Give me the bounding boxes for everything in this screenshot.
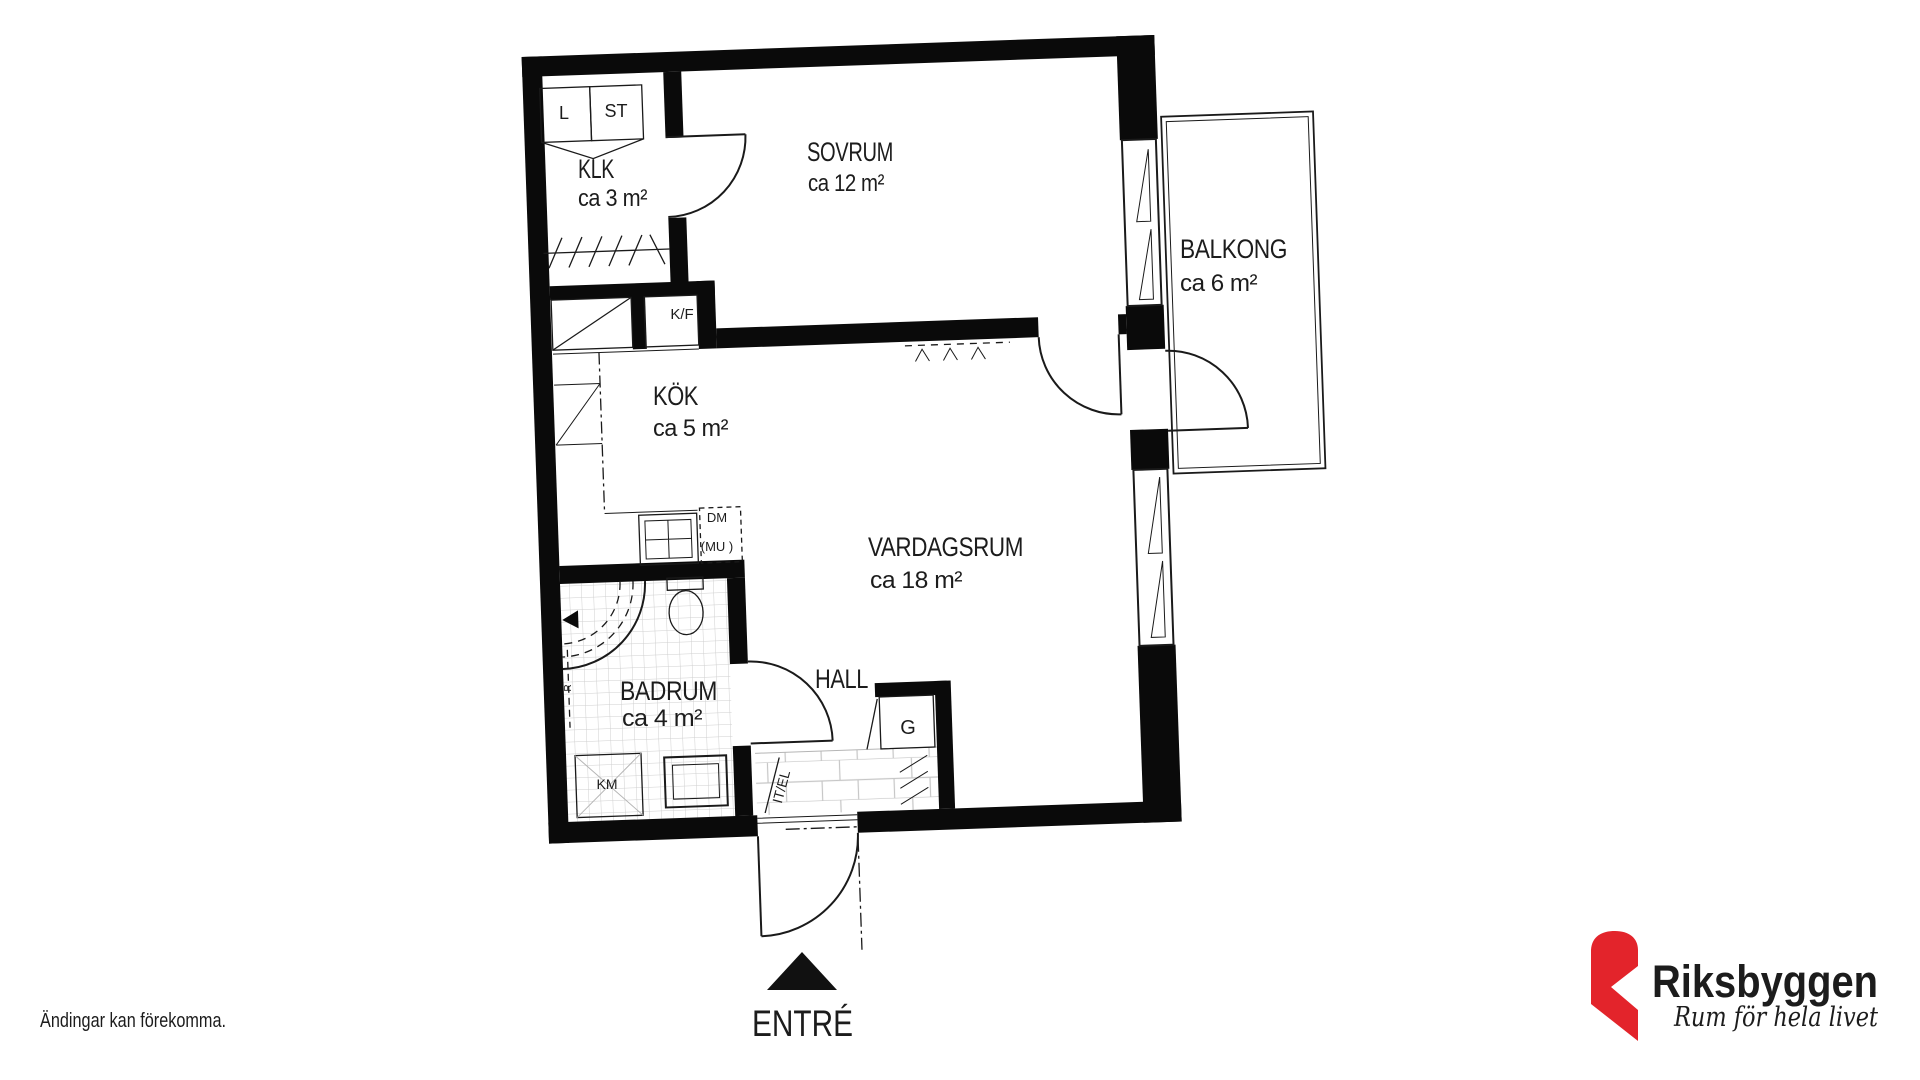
disclaimer-text: Ändingar kan förekomma. — [40, 1010, 226, 1032]
wall-sovrum-bottom-end — [1118, 314, 1127, 334]
label-wardrobe: G — [900, 717, 916, 739]
wall-stub-kf — [697, 280, 717, 349]
wall-right-pillar-2 — [1126, 305, 1166, 350]
label-fridge-freezer: K/F — [670, 306, 693, 323]
room-label-kok: KÖK — [653, 381, 698, 411]
brand-name: Riksbyggen — [1652, 956, 1878, 1007]
room-area-kok: ca 5 m² — [653, 415, 728, 442]
wall-badrum-right-lower — [733, 745, 753, 816]
wall-klk-right-upper — [663, 71, 683, 138]
room-label-badrum: BADRUM — [620, 676, 717, 706]
room-label-hall: HALL — [815, 664, 868, 694]
room-label-balkong: BALKONG — [1180, 234, 1287, 264]
floorplan-canvas: KLK ca 3 m² SOVRUM ca 12 m² KÖK ca 5 m² … — [0, 0, 1920, 1080]
room-label-sovrum: SOVRUM — [807, 137, 893, 167]
entrance-label: ENTRÉ — [752, 1003, 853, 1044]
wall-badrum-right-upper — [727, 578, 748, 665]
brand-tagline: Rum för hela livet — [1673, 1002, 1878, 1033]
wall-right-pillar-1 — [1116, 35, 1158, 140]
label-r: R — [563, 684, 574, 691]
room-area-vardagsrum: ca 18 m² — [870, 567, 963, 594]
room-area-badrum: ca 4 m² — [622, 705, 703, 732]
label-linen-closet: L — [559, 103, 569, 123]
wall-right-lower — [1138, 645, 1182, 823]
label-washing-machine: KM — [597, 776, 618, 792]
wall-right-pillar-3 — [1130, 429, 1169, 470]
label-microwave: (MU ) — [701, 539, 734, 554]
room-area-balkong: ca 6 m² — [1180, 270, 1258, 297]
room-label-vardagsrum: VARDAGSRUM — [868, 532, 1023, 562]
room-area-klk: ca 3 m² — [578, 185, 647, 212]
room-label-klk: KLK — [578, 154, 614, 184]
label-dishwasher: DM — [707, 510, 727, 525]
label-cleaning-closet: ST — [604, 101, 627, 121]
room-area-sovrum: ca 12 m² — [808, 170, 884, 197]
